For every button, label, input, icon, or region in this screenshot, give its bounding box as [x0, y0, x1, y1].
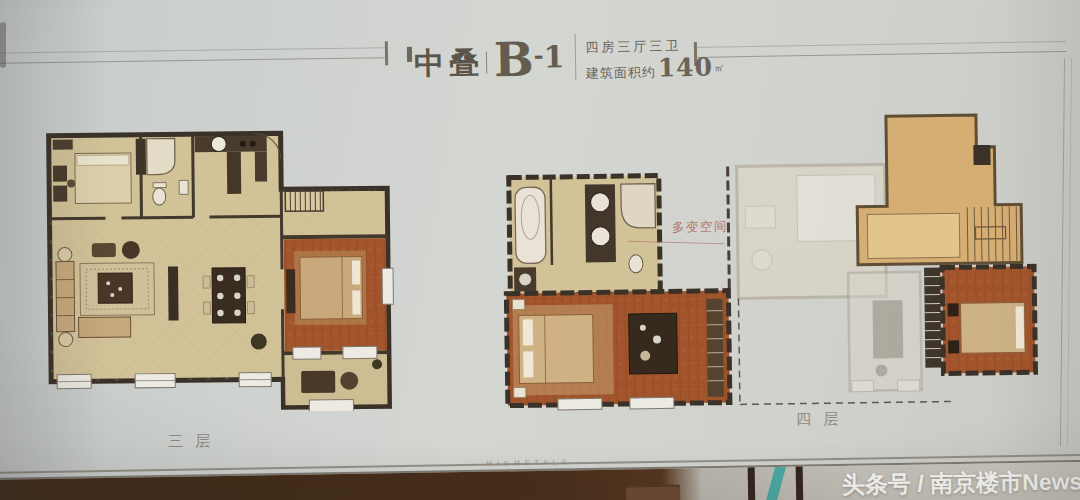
title-type-name: 中叠	[414, 48, 485, 85]
sofa-long	[56, 262, 75, 332]
side-table	[59, 333, 73, 347]
floor-label-fourth: 四层	[796, 410, 850, 429]
area-prefix: 建筑面积约	[586, 66, 656, 80]
page-frame-right	[1060, 58, 1072, 446]
nightstand	[514, 387, 526, 397]
bed-pillows	[77, 155, 129, 166]
bathtub	[515, 187, 546, 263]
desk	[53, 166, 67, 182]
dark-strip	[796, 466, 804, 500]
sink	[591, 227, 610, 246]
master-bedroom	[506, 291, 730, 411]
armchair	[92, 243, 116, 257]
floor-plan-third-floor	[40, 118, 395, 414]
unit-code-dash: -	[533, 40, 543, 69]
wardrobe	[706, 299, 723, 397]
tv-cabinet	[168, 266, 179, 320]
ladder	[924, 268, 941, 368]
photo-edge-smudge	[0, 22, 6, 68]
brochure-photo: 中叠 B-1 四房三厅三卫 建筑面积约 140 ㎡	[0, 0, 1080, 500]
bedroom-main-3f	[284, 238, 394, 351]
area-value: 140	[658, 56, 714, 78]
closet	[53, 140, 73, 150]
title-divider	[574, 34, 576, 80]
brown-chip	[626, 484, 680, 500]
bathroom-4f	[509, 176, 661, 296]
rule-endcap	[385, 41, 388, 65]
area-unit: ㎡	[714, 60, 726, 78]
floor-plan-fourth-floor	[496, 106, 1040, 426]
toilet-tank	[153, 183, 166, 188]
desk	[629, 313, 678, 374]
rule-tick	[407, 47, 412, 62]
title-separator	[486, 51, 487, 73]
faint-corner-text: ···········	[995, 430, 1054, 438]
bed	[961, 302, 1026, 353]
flex-space-label: 多变空间	[672, 219, 728, 237]
shower	[147, 138, 175, 174]
unit-code-digit: 1	[543, 39, 564, 74]
toilet	[629, 255, 643, 273]
bench	[301, 371, 335, 393]
counter	[195, 135, 267, 152]
window	[630, 397, 674, 409]
pillow	[523, 319, 533, 345]
title-rule-right	[694, 41, 1066, 58]
coffee-table	[98, 273, 132, 303]
nightstand	[512, 299, 524, 309]
sink	[179, 180, 188, 194]
balcony-3f	[285, 354, 388, 405]
nightstand	[948, 303, 959, 316]
plan-title-block: 中叠 B-1 四房三厅三卫 建筑面积约 140 ㎡	[414, 31, 727, 84]
wall-corner	[973, 145, 990, 165]
pillow	[352, 261, 360, 285]
title-unit-code: B-1	[494, 35, 565, 83]
dining-table	[212, 268, 246, 323]
pillow	[352, 291, 360, 315]
floor-label-third: 三层	[168, 432, 222, 451]
window	[382, 268, 393, 304]
title-specs: 四房三厅三卫 建筑面积约 140 ㎡	[585, 36, 726, 82]
window	[558, 398, 602, 410]
counter-side	[255, 151, 267, 181]
dresser	[53, 186, 67, 202]
terrace-inner	[867, 213, 960, 258]
nightstand	[948, 340, 959, 353]
sink	[590, 193, 609, 212]
teal-strip	[765, 466, 786, 500]
tv-bench	[286, 269, 295, 313]
title-rule-left	[0, 47, 388, 64]
pillow	[1016, 306, 1025, 348]
cabinet	[136, 139, 146, 175]
watermark-text: 头条号 / 南京楼市News	[842, 466, 1080, 500]
shower	[621, 184, 656, 228]
stairs-3f	[285, 191, 323, 211]
flexible-space-lower	[848, 272, 922, 392]
sofa-short	[79, 317, 131, 338]
pillow	[523, 351, 533, 377]
area-text: 建筑面积约 140 ㎡	[586, 56, 727, 80]
unit-code-letter: B	[494, 32, 535, 88]
toilet	[153, 188, 166, 205]
side-table	[58, 248, 72, 262]
kitchen-sink	[211, 136, 226, 151]
fridge	[227, 152, 241, 194]
dark-strip	[748, 467, 756, 500]
bedroom-second-4f	[942, 266, 1035, 373]
